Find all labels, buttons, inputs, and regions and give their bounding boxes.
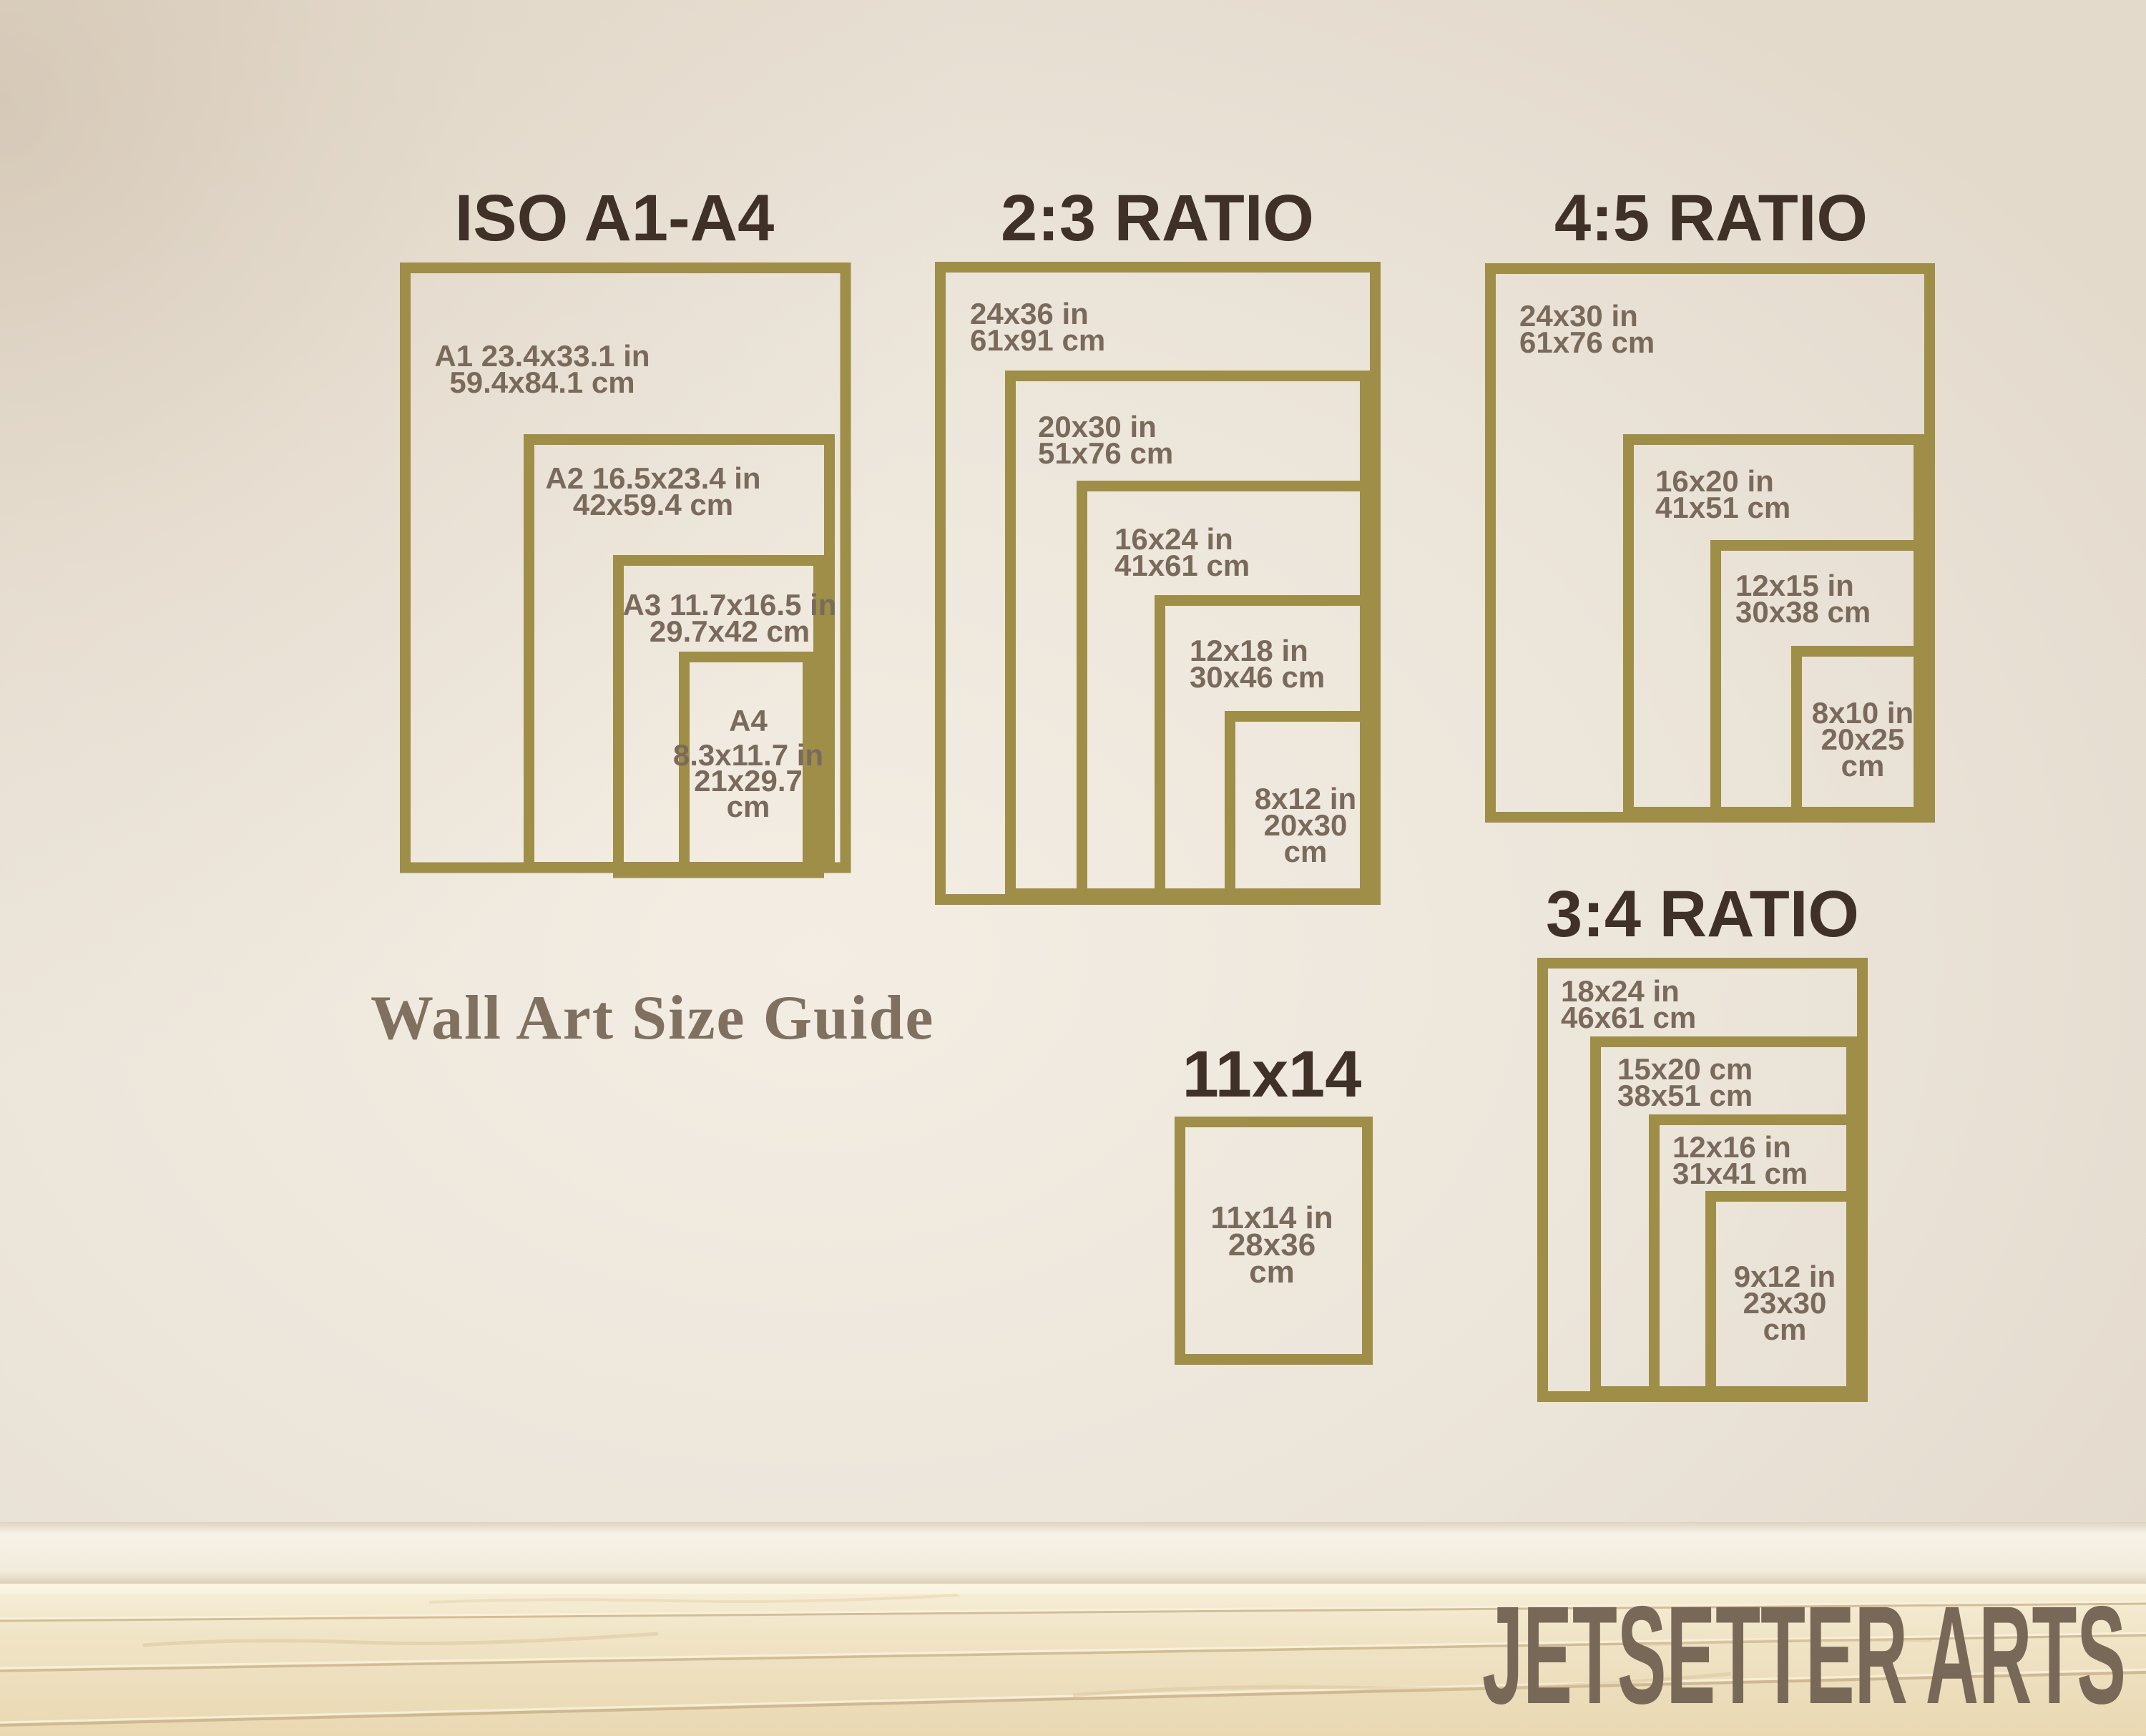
svg-text:20x30 in51x76 cm: 20x30 in51x76 cm xyxy=(1038,410,1173,470)
svg-text:12x18 in30x46 cm: 12x18 in30x46 cm xyxy=(1190,634,1325,694)
svg-text:Wall Art Size Guide: Wall Art Size Guide xyxy=(371,984,934,1053)
svg-text:3:4 RATIO: 3:4 RATIO xyxy=(1546,878,1859,951)
svg-text:4:5 RATIO: 4:5 RATIO xyxy=(1554,182,1868,255)
svg-text:A3 11.7x16.5 in29.7x42 cm: A3 11.7x16.5 in29.7x42 cm xyxy=(623,588,837,648)
svg-text:18x24 in46x61 cm: 18x24 in46x61 cm xyxy=(1561,974,1696,1034)
svg-text:JETSETTER ARTS: JETSETTER ARTS xyxy=(1482,1577,2126,1733)
svg-text:2:3 RATIO: 2:3 RATIO xyxy=(1001,182,1314,255)
svg-text:12x15 in30x38 cm: 12x15 in30x38 cm xyxy=(1735,569,1871,629)
svg-text:11x14: 11x14 xyxy=(1182,1038,1362,1111)
svg-text:16x24 in41x61 cm: 16x24 in41x61 cm xyxy=(1114,522,1250,582)
svg-text:A2 16.5x23.4 in42x59.4 cm: A2 16.5x23.4 in42x59.4 cm xyxy=(545,461,760,521)
svg-text:24x30 in61x76 cm: 24x30 in61x76 cm xyxy=(1519,299,1655,359)
svg-text:24x36 in61x91 cm: 24x36 in61x91 cm xyxy=(970,297,1105,357)
svg-text:15x20 cm38x51 cm: 15x20 cm38x51 cm xyxy=(1617,1052,1753,1112)
svg-text:ISO A1-A4: ISO A1-A4 xyxy=(455,182,774,255)
svg-text:16x20 in41x51 cm: 16x20 in41x51 cm xyxy=(1655,464,1790,524)
svg-text:12x16 in31x41 cm: 12x16 in31x41 cm xyxy=(1672,1130,1808,1190)
svg-text:A1 23.4x33.1 in59.4x84.1 cm: A1 23.4x33.1 in59.4x84.1 cm xyxy=(434,339,650,399)
